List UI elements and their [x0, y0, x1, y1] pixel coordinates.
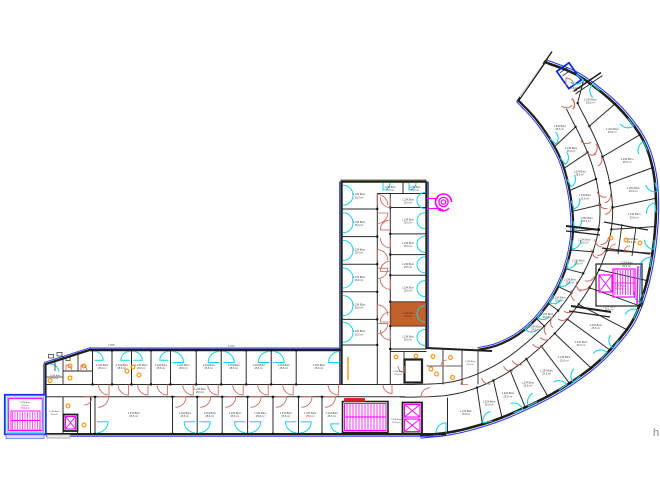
svg-text:25,6 m²: 25,6 m²: [575, 174, 584, 177]
svg-text:25,6 m²: 25,6 m²: [404, 290, 412, 293]
svg-text:25,6 m²: 25,6 m²: [411, 189, 419, 192]
svg-text:25,6 m²: 25,6 m²: [580, 242, 589, 245]
svg-text:25,6 m²: 25,6 m²: [355, 333, 364, 336]
svg-text:25,6 m²: 25,6 m²: [581, 197, 590, 200]
svg-text:25,6 m²: 25,6 m²: [543, 316, 552, 319]
svg-text:25,6 m²: 25,6 m²: [179, 367, 188, 370]
svg-text:25,6 m²: 25,6 m²: [630, 215, 639, 219]
svg-text:25,6 m²: 25,6 m²: [355, 279, 364, 282]
svg-text:25,6 m²: 25,6 m²: [560, 358, 569, 362]
svg-text:25,6 m²: 25,6 m²: [404, 202, 412, 205]
svg-text:25,6 m²: 25,6 m²: [591, 326, 600, 330]
svg-text:25,6 m²: 25,6 m²: [623, 160, 632, 164]
svg-text:25,6 m²: 25,6 m²: [555, 300, 564, 303]
svg-text:25,6 m²: 25,6 m²: [181, 415, 190, 418]
svg-text:25,6 m²: 25,6 m²: [315, 367, 324, 370]
svg-text:25,6 m²: 25,6 m²: [574, 262, 583, 265]
svg-text:25,6 m²: 25,6 m²: [566, 282, 575, 285]
svg-text:25,6 m²: 25,6 m²: [282, 415, 291, 418]
svg-text:25,6 m²: 25,6 m²: [196, 391, 204, 394]
svg-text:h: h: [653, 427, 659, 439]
svg-text:25,6 m²: 25,6 m²: [567, 150, 576, 153]
svg-text:25,6 m²: 25,6 m²: [328, 415, 337, 418]
svg-text:25,6 m²: 25,6 m²: [466, 363, 474, 366]
svg-text:25,6 m²: 25,6 m²: [615, 287, 624, 291]
svg-text:25,6 m²: 25,6 m²: [627, 240, 636, 244]
svg-text:25,6 m²: 25,6 m²: [256, 415, 265, 418]
svg-text:25,6 m²: 25,6 m²: [462, 413, 470, 416]
svg-text:25,6 m²: 25,6 m²: [523, 384, 532, 388]
svg-text:25,6 m²: 25,6 m²: [98, 367, 107, 370]
svg-text:1.234 Büro: 1.234 Büro: [391, 418, 402, 421]
svg-text:25,6 m²: 25,6 m²: [392, 421, 400, 424]
svg-text:25,6 m²: 25,6 m²: [231, 415, 240, 418]
svg-text:25,6 m²: 25,6 m²: [355, 224, 364, 227]
svg-text:25,6 m²: 25,6 m²: [404, 222, 412, 225]
svg-text:25,6 m²: 25,6 m²: [577, 343, 586, 347]
svg-text:5.010: 5.010: [228, 344, 235, 348]
svg-text:25,6 m²: 25,6 m²: [582, 220, 591, 223]
svg-text:25,6 m²: 25,6 m²: [50, 413, 58, 416]
svg-text:25,6 m²: 25,6 m²: [531, 329, 540, 332]
svg-text:1.234 Büro: 1.234 Büro: [409, 186, 421, 189]
svg-text:1.234 Büro: 1.234 Büro: [384, 186, 396, 189]
svg-text:25,6 m²: 25,6 m²: [355, 196, 364, 199]
svg-text:1.234 Büro: 1.234 Büro: [50, 374, 61, 377]
svg-text:1.234 Büro: 1.234 Büro: [393, 370, 404, 373]
svg-text:25,6 m²: 25,6 m²: [404, 245, 412, 248]
svg-text:25,6 m²: 25,6 m²: [130, 415, 139, 418]
svg-text:25,6 m²: 25,6 m²: [386, 189, 394, 192]
svg-text:25,6 m²: 25,6 m²: [394, 373, 402, 376]
svg-text:25,6 m²: 25,6 m²: [542, 372, 551, 376]
svg-text:25,6 m²: 25,6 m²: [629, 189, 638, 193]
svg-text:25,6 m²: 25,6 m²: [229, 367, 238, 370]
svg-text:25,6 m²: 25,6 m²: [204, 367, 213, 370]
svg-text:1.234 Büro: 1.234 Büro: [20, 401, 31, 404]
svg-text:25,6 m²: 25,6 m²: [355, 252, 364, 255]
svg-text:25,6 m²: 25,6 m²: [556, 128, 565, 131]
svg-text:25,6 m²: 25,6 m²: [573, 89, 582, 93]
svg-text:25,6 m²: 25,6 m²: [137, 367, 146, 370]
svg-text:25,6 m²: 25,6 m²: [254, 367, 263, 370]
svg-text:25,6 m²: 25,6 m²: [118, 367, 127, 370]
svg-text:25,6 m²: 25,6 m²: [279, 367, 288, 370]
svg-text:7.505: 7.505: [108, 343, 115, 347]
svg-text:25,6 m²: 25,6 m²: [504, 394, 513, 398]
svg-text:25,6 m²: 25,6 m²: [404, 339, 412, 342]
svg-text:25,6 m²: 25,6 m²: [485, 403, 494, 407]
svg-text:1.234 Büro: 1.234 Büro: [465, 360, 476, 363]
svg-text:25,6 m²: 25,6 m²: [205, 415, 214, 418]
svg-text:25,6 m²: 25,6 m²: [306, 415, 315, 418]
svg-text:25,6 m²: 25,6 m²: [355, 307, 364, 310]
svg-text:25,6 m²: 25,6 m²: [404, 315, 412, 318]
svg-text:25,6 m²: 25,6 m²: [21, 404, 29, 407]
svg-text:1.234 Büro: 1.234 Büro: [49, 410, 60, 413]
svg-text:25,6 m²: 25,6 m²: [404, 266, 412, 269]
svg-text:25,6 m²: 25,6 m²: [157, 367, 166, 370]
svg-text:25,6 m²: 25,6 m²: [608, 130, 617, 134]
svg-text:25,6 m²: 25,6 m²: [586, 101, 595, 105]
